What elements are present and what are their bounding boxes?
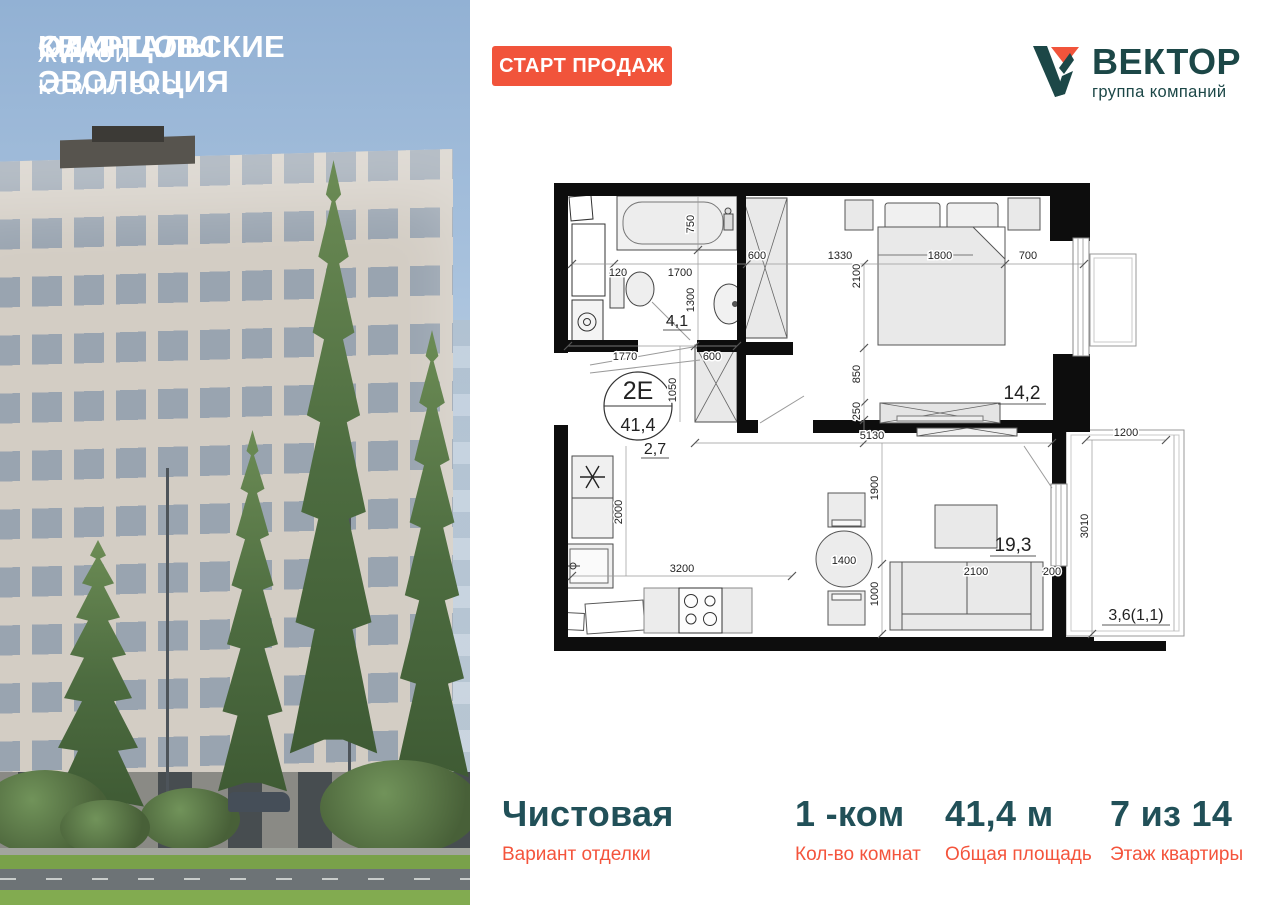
car <box>228 792 290 812</box>
dim-bed-foot-gap: 850 <box>851 365 863 383</box>
area-balcony: 3,6(1,1) <box>1108 607 1163 624</box>
dim-living-span: 5130 <box>860 430 884 442</box>
bush <box>320 760 470 855</box>
dim-hall-closet-width: 600 <box>703 351 721 363</box>
stat-area-label: Общая площадь <box>945 844 1092 866</box>
dim-tub-offset: 120 <box>609 267 627 279</box>
road <box>0 869 470 890</box>
kitchen-fixtures <box>565 456 752 634</box>
tv-unit <box>917 428 1017 436</box>
logo-tagline: группа компаний <box>1092 83 1241 102</box>
stat-rooms-label: Кол-во комнат <box>795 844 921 866</box>
unit-type-circle: 2Е 41,4 <box>604 372 672 440</box>
dim-entry-closet-width: 600 <box>748 250 766 262</box>
bush <box>60 800 150 855</box>
building-photo: ОДИНЦОВСКИЕ КВАРТАЛЫ ЭВОЛЮЦИЯ жилой комп… <box>0 0 470 905</box>
stat-area: 41,4 м Общая площадь <box>945 793 1092 866</box>
grass-foreground <box>0 890 470 905</box>
vektor-logo-mark <box>1032 44 1080 98</box>
stat-finish-label: Вариант отделки <box>502 844 674 866</box>
area-living: 19,3 <box>995 535 1032 556</box>
bush <box>140 788 240 850</box>
dim-balcony-length: 3010 <box>1079 514 1091 538</box>
area-bathroom: 4,1 <box>666 313 688 330</box>
dim-tub-width: 750 <box>685 215 697 233</box>
dim-bed-width: 1800 <box>928 250 952 262</box>
area-bedroom: 14,2 <box>1004 383 1041 404</box>
dim-hall-closet-depth: 1050 <box>667 378 679 402</box>
grass-strip <box>0 855 470 869</box>
logo-name: ВЕКТОР <box>1092 44 1241 80</box>
floor-plan: 2Е 41,4 120 1700 600 1330 1800 700 750 1… <box>552 178 1192 668</box>
dim-hall-width: 1770 <box>613 351 637 363</box>
start-sales-badge: СТАРТ ПРОДАЖ <box>492 46 672 86</box>
dim-bath-depth: 1300 <box>685 288 697 312</box>
unit-type: 2Е <box>623 377 654 405</box>
dim-dresser-depth: 250 <box>851 402 863 420</box>
dim-sofa-gap: 200 <box>1043 566 1061 578</box>
street-lamp <box>166 468 169 803</box>
dim-balcony-width: 1200 <box>1114 427 1138 439</box>
unit-area: 41,4 <box>620 415 655 435</box>
walkway <box>0 848 470 855</box>
stat-floor-value: 7 из 14 <box>1110 793 1243 835</box>
stat-area-value: 41,4 м <box>945 793 1092 835</box>
dim-kitchen-depth: 2000 <box>613 500 625 524</box>
stat-rooms-value: 1 -ком <box>795 793 921 835</box>
project-subtitle: жилой комплекс <box>38 37 179 101</box>
area-hallway: 2,7 <box>644 441 666 458</box>
dim-living-depth1: 1900 <box>869 476 881 500</box>
bathroom-fixtures <box>569 195 744 344</box>
dim-table-size: 1400 <box>832 555 856 567</box>
building-facade <box>0 149 453 815</box>
coffee-table <box>935 505 997 548</box>
dim-kitchen-run: 3200 <box>670 563 694 575</box>
bedroom-dresser <box>880 403 1000 423</box>
vektor-logo: ВЕКТОР группа компаний <box>1032 44 1241 102</box>
stat-finish-value: Чистовая <box>502 793 674 835</box>
stat-finish: Чистовая Вариант отделки <box>502 793 674 866</box>
stat-floor-label: Этаж квартиры <box>1110 844 1243 866</box>
building-roof-box <box>92 126 164 142</box>
stat-rooms: 1 -ком Кол-во комнат <box>795 793 921 866</box>
dim-bed-side-gap: 700 <box>1019 250 1037 262</box>
stat-floor: 7 из 14 Этаж квартиры <box>1110 793 1243 866</box>
french-balcony <box>1090 254 1136 346</box>
dim-sofa-length: 2100 <box>964 566 988 578</box>
dim-tub-length: 1700 <box>668 267 692 279</box>
dim-bed-length: 2100 <box>851 264 863 288</box>
dim-bed-gap: 1330 <box>828 250 852 262</box>
dim-living-depth2: 1000 <box>869 582 881 606</box>
bed <box>845 198 1040 345</box>
